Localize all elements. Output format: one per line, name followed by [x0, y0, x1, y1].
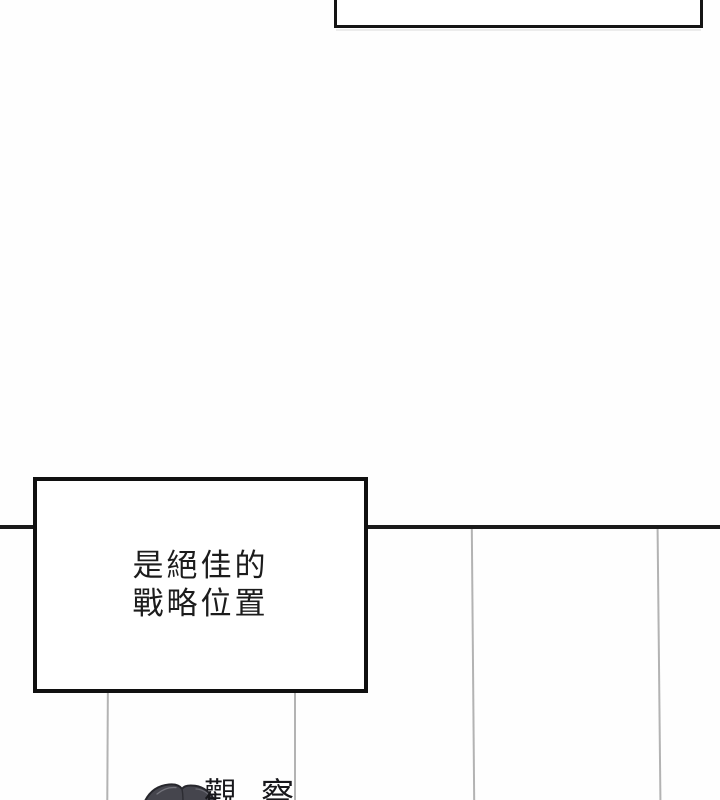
- caption-text-line-1: 是絕佳的: [133, 547, 269, 585]
- bottom-partial-text: 觀察: [204, 777, 318, 800]
- comic-page: 是絕佳的 戰略位置 觀察: [0, 0, 720, 800]
- caption-box: 是絕佳的 戰略位置: [33, 477, 368, 693]
- background-wall-line: [657, 529, 662, 800]
- top-caption-box-shadow: [336, 29, 701, 31]
- background-wall-line: [471, 529, 475, 800]
- top-caption-box: [334, 0, 703, 28]
- caption-text-line-2: 戰略位置: [133, 585, 269, 623]
